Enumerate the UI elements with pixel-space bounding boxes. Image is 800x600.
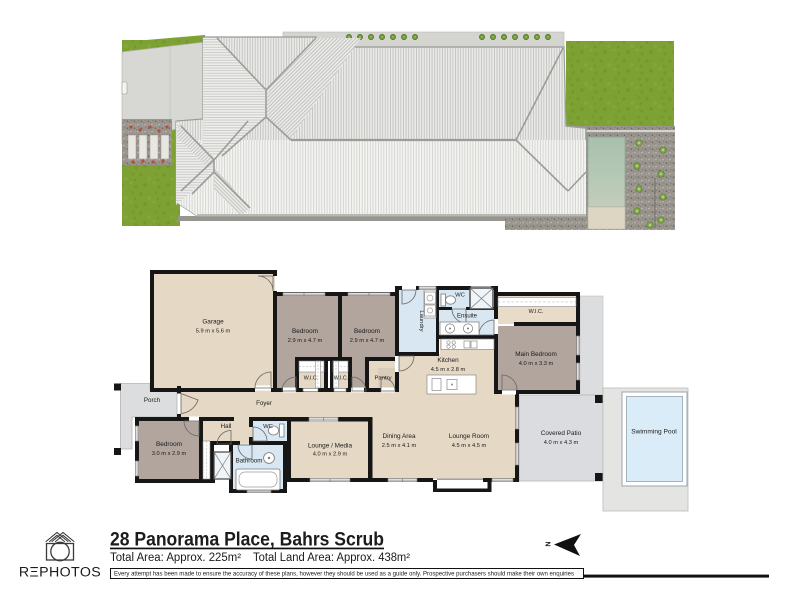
svg-text:2.9 m x 4.7 m: 2.9 m x 4.7 m	[288, 338, 323, 344]
svg-text:Pantry: Pantry	[374, 376, 391, 382]
svg-text:W.I.C.: W.I.C.	[334, 376, 348, 382]
svg-text:4.5 m x 4.5 m: 4.5 m x 4.5 m	[452, 443, 487, 449]
svg-text:4.0 m x 2.9 m: 4.0 m x 2.9 m	[313, 452, 348, 458]
svg-text:Dining Area: Dining Area	[382, 433, 415, 440]
svg-text:W.I.C.: W.I.C.	[529, 309, 544, 315]
svg-text:Bathroom: Bathroom	[236, 458, 263, 465]
svg-text:WC: WC	[455, 293, 466, 299]
svg-text:4.0 m x 3.3 m: 4.0 m x 3.3 m	[519, 361, 554, 367]
svg-text:4.5 m x 2.8 m: 4.5 m x 2.8 m	[431, 367, 466, 373]
svg-text:WC: WC	[263, 424, 274, 430]
svg-text:Every attempt has been made to: Every attempt has been made to ensure th…	[114, 571, 574, 578]
svg-text:Bedroom: Bedroom	[354, 328, 380, 335]
svg-text:4.0 m x 4.3 m: 4.0 m x 4.3 m	[544, 440, 579, 446]
svg-text:Garage: Garage	[202, 319, 224, 326]
svg-text:Total Land Area: Approx. 438m²: Total Land Area: Approx. 438m²	[253, 552, 410, 564]
svg-text:2.9 m x 4.7 m: 2.9 m x 4.7 m	[350, 338, 385, 344]
svg-text:2.5 m x 4.1 m: 2.5 m x 4.1 m	[382, 443, 417, 449]
svg-text:3.0 m x 2.9 m: 3.0 m x 2.9 m	[152, 451, 187, 457]
svg-text:Swimming Pool: Swimming Pool	[631, 429, 677, 436]
svg-text:W.I.C.: W.I.C.	[304, 376, 318, 382]
svg-text:Covered Patio: Covered Patio	[541, 430, 582, 437]
svg-text:Lounge Room: Lounge Room	[449, 433, 489, 440]
svg-text:Main Bedroom: Main Bedroom	[515, 351, 557, 358]
svg-text:Hall: Hall	[221, 423, 232, 430]
svg-text:5.9 m x 5.6 m: 5.9 m x 5.6 m	[196, 329, 231, 335]
svg-text:Laundry: Laundry	[418, 310, 424, 331]
svg-text:28 Panorama Place, Bahrs Scrub: 28 Panorama Place, Bahrs Scrub	[110, 530, 384, 551]
svg-text:Ensuite: Ensuite	[457, 314, 478, 320]
svg-text:Kitchen: Kitchen	[437, 357, 459, 364]
svg-text:Bedroom: Bedroom	[156, 441, 182, 448]
svg-text:N: N	[544, 541, 551, 546]
svg-text:RΞPHOTOS: RΞPHOTOS	[19, 565, 101, 581]
svg-text:Bedroom: Bedroom	[292, 328, 318, 335]
svg-text:Lounge / Media: Lounge / Media	[308, 443, 353, 450]
svg-text:Porch: Porch	[144, 397, 161, 404]
svg-text:Foyer: Foyer	[256, 400, 272, 407]
svg-text:Total Area: Approx. 225m²: Total Area: Approx. 225m²	[110, 552, 241, 564]
